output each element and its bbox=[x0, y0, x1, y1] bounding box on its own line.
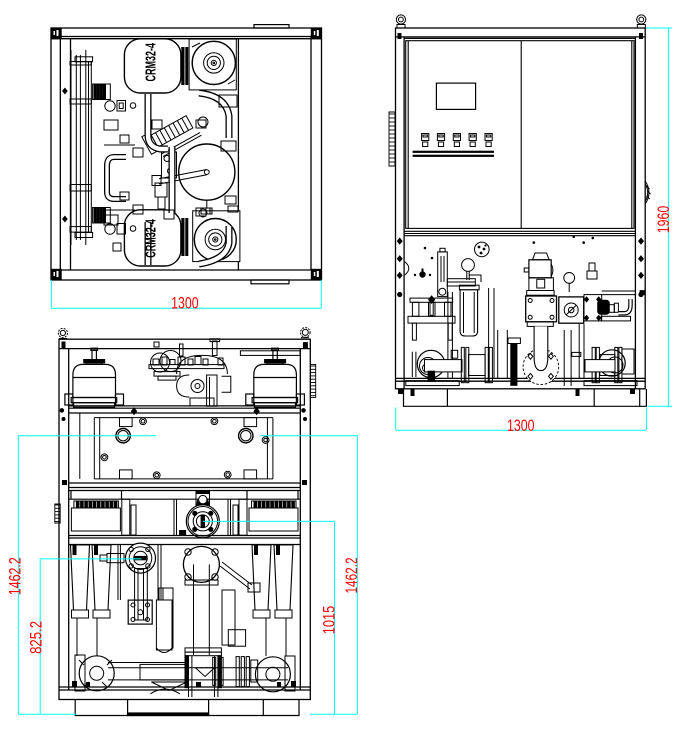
svg-text:CRM32-4: CRM32-4 bbox=[144, 43, 160, 82]
svg-text:825.2: 825.2 bbox=[26, 621, 45, 654]
svg-text:1015: 1015 bbox=[320, 606, 339, 635]
svg-text:1300: 1300 bbox=[507, 416, 535, 435]
svg-text:1462.2: 1462.2 bbox=[342, 558, 361, 594]
svg-text:CRM32-4: CRM32-4 bbox=[144, 219, 160, 258]
svg-text:1462.2: 1462.2 bbox=[5, 557, 24, 595]
svg-text:1300: 1300 bbox=[171, 294, 199, 313]
svg-text:1960: 1960 bbox=[654, 206, 673, 234]
